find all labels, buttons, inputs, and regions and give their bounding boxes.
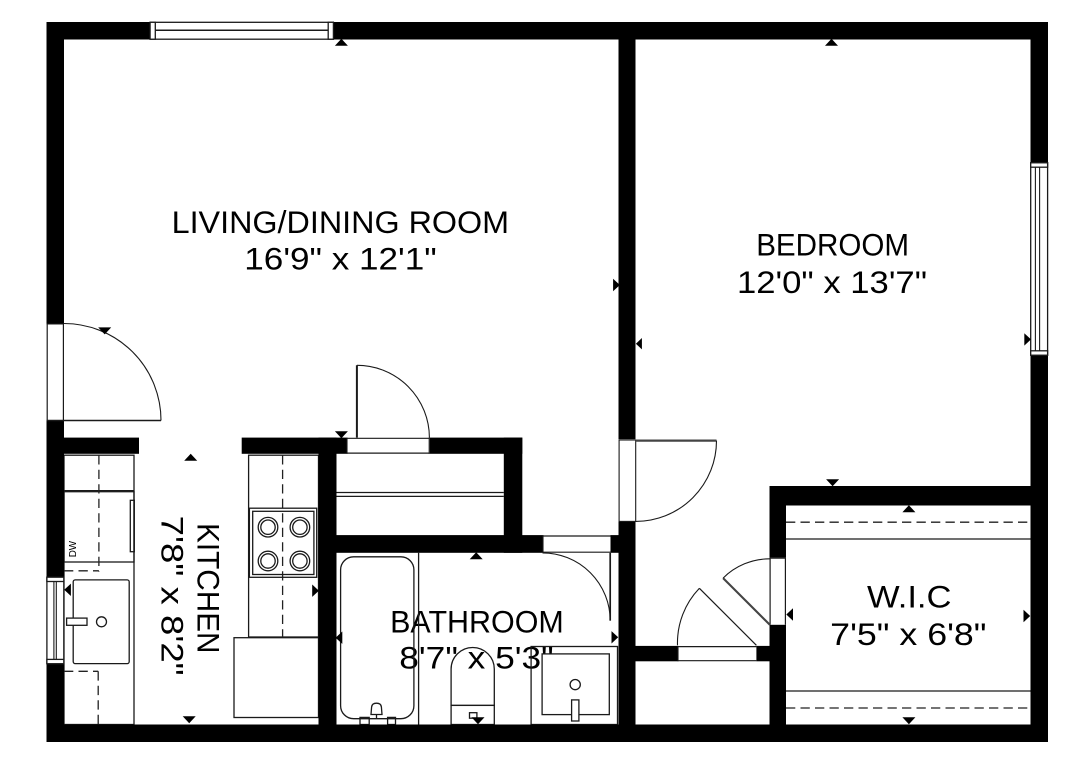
svg-text:KITCHEN: KITCHEN xyxy=(191,523,227,654)
svg-text:7'8" x 8'2": 7'8" x 8'2" xyxy=(155,516,191,676)
svg-text:12'0" x 13'7": 12'0" x 13'7" xyxy=(737,264,927,300)
svg-text:LIVING/DINING ROOM: LIVING/DINING ROOM xyxy=(172,204,510,240)
svg-text:BEDROOM: BEDROOM xyxy=(756,226,909,262)
svg-text:16'9" x 12'1": 16'9" x 12'1" xyxy=(244,241,436,277)
svg-text:DW: DW xyxy=(68,540,79,557)
svg-text:W.I.C: W.I.C xyxy=(867,578,952,614)
svg-text:7'5" x 6'8": 7'5" x 6'8" xyxy=(830,616,986,652)
svg-text:BATHROOM: BATHROOM xyxy=(390,604,564,640)
